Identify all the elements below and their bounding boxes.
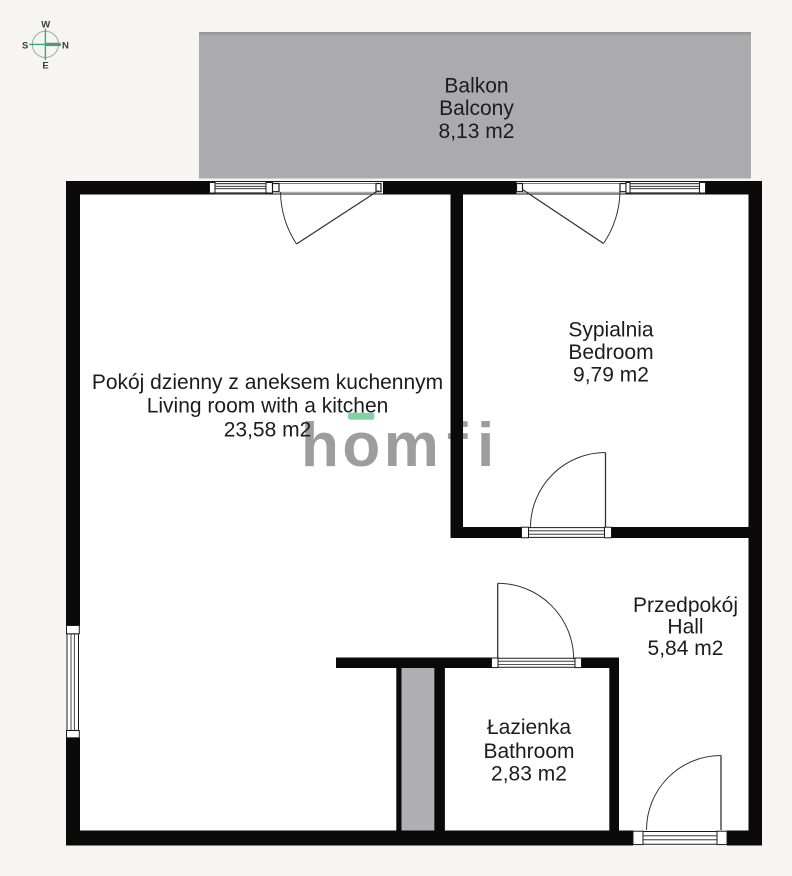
svg-text:Sypialnia: Sypialnia [568,318,654,341]
svg-text:9,79 m2: 9,79 m2 [573,364,649,387]
svg-text:Bathroom: Bathroom [483,740,574,763]
svg-text:23,58 m2: 23,58 m2 [224,419,312,442]
svg-text:Pokój dzienny z aneksem kuchen: Pokój dzienny z aneksem kuchennym [92,371,443,394]
svg-text:Bedroom: Bedroom [568,341,653,364]
svg-text:5,84 m2: 5,84 m2 [648,637,724,660]
svg-text:W: W [41,19,50,30]
svg-text:N: N [62,40,69,51]
svg-text:Przedpokój: Przedpokój [633,594,738,617]
svg-text:Balkon: Balkon [444,75,508,98]
svg-text:Balcony: Balcony [439,97,514,120]
svg-text:S: S [22,40,28,51]
svg-text:Living room with a kitchen: Living room with a kitchen [147,395,389,418]
svg-text:8,13 m2: 8,13 m2 [439,120,515,143]
svg-text:homfi: homfi [301,411,498,480]
svg-text:2,83 m2: 2,83 m2 [491,763,567,786]
svg-text:Łazienka: Łazienka [487,716,571,739]
svg-text:E: E [42,60,48,71]
svg-text:Hall: Hall [667,615,703,638]
